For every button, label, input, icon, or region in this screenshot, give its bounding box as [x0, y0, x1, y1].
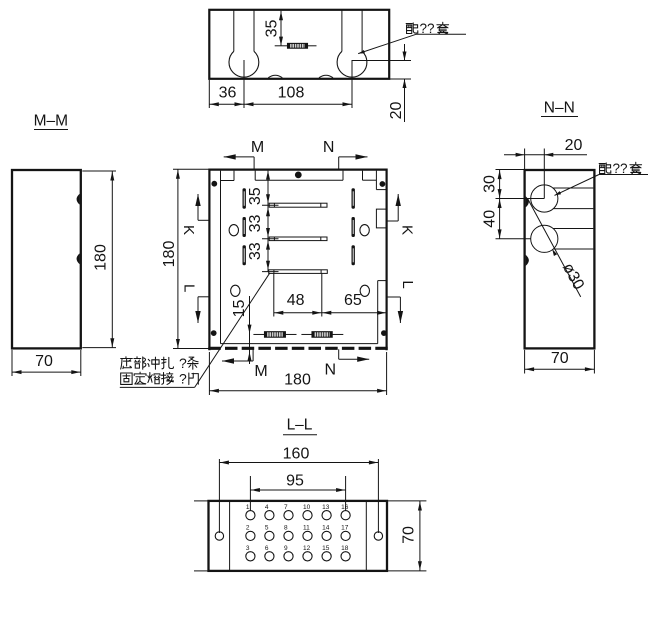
svg-text:4: 4 — [265, 504, 269, 511]
svg-text:1: 1 — [246, 504, 250, 511]
svg-text:12: 12 — [303, 545, 311, 552]
svg-text:?: ? — [179, 371, 187, 387]
svg-text:35: 35 — [264, 20, 281, 38]
svg-text:N: N — [323, 139, 335, 156]
svg-text:L: L — [399, 280, 416, 288]
svg-text:M: M — [251, 139, 264, 156]
svg-text:180: 180 — [92, 244, 109, 271]
svg-text:160: 160 — [283, 446, 310, 463]
svg-text:17: 17 — [341, 525, 349, 532]
svg-text:11: 11 — [303, 525, 310, 532]
svg-text:K: K — [180, 225, 197, 235]
svg-text:N: N — [325, 361, 337, 378]
svg-text:14: 14 — [322, 525, 330, 532]
svg-text:?: ? — [179, 355, 187, 371]
svg-text:36: 36 — [219, 85, 237, 102]
svg-text:18: 18 — [341, 545, 349, 552]
svg-text:180: 180 — [284, 372, 311, 389]
svg-text:65: 65 — [344, 292, 362, 309]
svg-text:40: 40 — [481, 210, 498, 228]
svg-text:10: 10 — [303, 504, 311, 511]
svg-text:16: 16 — [341, 504, 349, 511]
svg-text:??: ?? — [420, 21, 435, 36]
svg-text:95: 95 — [286, 473, 304, 490]
svg-text:9: 9 — [284, 545, 288, 552]
svg-text:180: 180 — [161, 241, 178, 268]
svg-text:M–M: M–M — [34, 113, 68, 130]
svg-text:3: 3 — [246, 545, 250, 552]
svg-text:6: 6 — [265, 545, 269, 552]
svg-text:30: 30 — [481, 175, 498, 193]
svg-text:33: 33 — [247, 242, 264, 260]
svg-text:L: L — [181, 284, 198, 292]
svg-text:33: 33 — [247, 215, 264, 233]
svg-text:K: K — [398, 225, 415, 235]
svg-text:35: 35 — [247, 187, 264, 205]
svg-text:15: 15 — [231, 300, 248, 318]
svg-text:20: 20 — [565, 137, 583, 154]
svg-text:7: 7 — [284, 504, 288, 511]
svg-text:48: 48 — [287, 292, 305, 309]
svg-text:8: 8 — [284, 525, 288, 532]
svg-text:13: 13 — [322, 504, 330, 511]
svg-text:70: 70 — [400, 526, 417, 544]
svg-text:??: ?? — [613, 161, 628, 176]
svg-text:20: 20 — [388, 102, 405, 120]
svg-text:5: 5 — [265, 525, 269, 532]
svg-text:15: 15 — [322, 545, 330, 552]
svg-text:N–N: N–N — [544, 100, 575, 117]
svg-text:M: M — [254, 363, 267, 380]
svg-text:70: 70 — [551, 350, 569, 367]
svg-text:70: 70 — [35, 353, 53, 370]
svg-text:108: 108 — [278, 85, 305, 102]
svg-text:2: 2 — [246, 525, 250, 532]
svg-text:L–L: L–L — [287, 417, 313, 434]
